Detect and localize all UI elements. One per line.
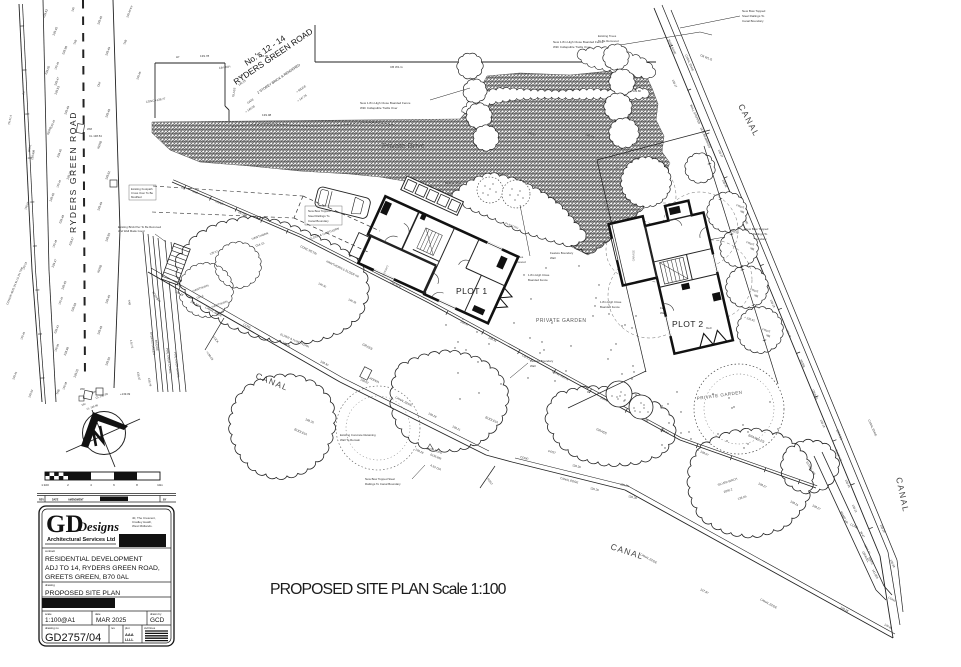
- svg-text:Wall: Wall: [550, 256, 556, 260]
- svg-text:New Bow Topped Steel: New Bow Topped Steel: [365, 477, 395, 481]
- svg-text:10m: 10m: [157, 483, 163, 487]
- svg-text:CB W1.G: CB W1.G: [390, 65, 403, 69]
- svg-text:rev: rev: [111, 626, 115, 630]
- svg-text:PLOT 2: PLOT 2: [672, 319, 704, 329]
- svg-text:date: date: [95, 612, 101, 616]
- svg-text:drawing no: drawing no: [45, 626, 59, 630]
- svg-text:New 1.8m High Close Boarded Fe: New 1.8m High Close Boarded Fence: [553, 40, 604, 44]
- svg-text:Boarded Fence: Boarded Fence: [600, 305, 620, 309]
- svg-text:And Wall Made Good: And Wall Made Good: [118, 229, 145, 233]
- svg-text:GREETS GREEN, B70 0AL: GREETS GREEN, B70 0AL: [45, 574, 129, 581]
- svg-text:LP: LP: [176, 55, 180, 59]
- svg-text:scale: scale: [45, 612, 52, 616]
- svg-text:drawing: drawing: [45, 583, 55, 587]
- svg-text:To Be Removed: To Be Removed: [598, 39, 619, 43]
- svg-text:138.00: 138.00: [259, 54, 269, 58]
- svg-text:Existing Trees: Existing Trees: [598, 34, 617, 38]
- svg-text:With Collapsible Trellis Over: With Collapsible Trellis Over: [360, 106, 398, 110]
- svg-text:Feature Boundary: Feature Boundary: [530, 359, 554, 363]
- svg-text:Modified: Modified: [131, 195, 142, 199]
- svg-text:drawn by: drawn by: [150, 612, 162, 616]
- svg-text:Canal Boundary: Canal Boundary: [742, 19, 764, 23]
- svg-text:Refuse Area: Refuse Area: [445, 181, 462, 185]
- svg-text:Boarded Fence: Boarded Fence: [528, 278, 548, 282]
- svg-text:New Bow Topped: New Bow Topped: [742, 9, 766, 13]
- svg-text:GARAGE: GARAGE: [632, 250, 636, 261]
- svg-text:GD2757/04: GD2757/04: [45, 632, 101, 644]
- svg-text:9w0: 9w0: [706, 326, 712, 330]
- svg-text:AAA: AAA: [125, 632, 134, 637]
- svg-text:139.08: 139.08: [262, 113, 272, 117]
- svg-text:Architectural Services Ltd: Architectural Services Ltd: [47, 537, 115, 543]
- svg-text:BY: BY: [163, 499, 167, 502]
- svg-text:Canal Boundary: Canal Boundary: [308, 219, 329, 223]
- svg-text:+ 139.80: + 139.80: [630, 89, 641, 93]
- svg-text:With Collapsible Trellis Over: With Collapsible Trellis Over: [553, 45, 591, 49]
- svg-text:1.8m High Close: 1.8m High Close: [528, 273, 550, 277]
- svg-text:Steel Railings To: Steel Railings To: [742, 14, 765, 18]
- svg-text:civil lines: civil lines: [144, 626, 156, 630]
- svg-text:1:100: 1:100: [41, 483, 49, 487]
- svg-text:GCD: GCD: [150, 617, 165, 624]
- svg-text:RESIDENTIAL DEVELOPMENT: RESIDENTIAL DEVELOPMENT: [45, 556, 143, 563]
- svg-text:plot: plot: [125, 626, 130, 630]
- svg-text:DATE: DATE: [52, 499, 59, 502]
- svg-text:CL 138.54: CL 138.54: [89, 134, 102, 138]
- svg-text:New 1.8m High Close Boarded Fe: New 1.8m High Close Boarded Fence: [360, 101, 411, 105]
- svg-text:PROPOSED SITE PLAN: PROPOSED SITE PLAN: [45, 590, 120, 597]
- svg-text:Existing Concrete Retaining: Existing Concrete Retaining: [340, 433, 376, 437]
- svg-text:+139.09: +139.09: [120, 392, 131, 396]
- svg-text:PRIVATE GARDEN: PRIVATE GARDEN: [536, 318, 586, 324]
- svg-text:LLLL: LLLL: [125, 638, 134, 642]
- svg-text:New Bow Topped: New Bow Topped: [308, 209, 331, 213]
- svg-text:West Midlands.: West Midlands.: [132, 524, 153, 528]
- svg-text:WM: WM: [87, 127, 93, 131]
- svg-text:Railings To Canal Boundary: Railings To Canal Boundary: [365, 482, 401, 486]
- svg-text:Designs: Designs: [77, 520, 119, 534]
- svg-text:Wall: Wall: [530, 364, 536, 368]
- svg-text:contract: contract: [45, 549, 55, 553]
- svg-text:AMENDMENT: AMENDMENT: [68, 499, 84, 502]
- svg-text:PLOT 1: PLOT 1: [456, 286, 488, 296]
- svg-text:PROPOSED SITE PLAN Scale 1:100: PROPOSED SITE PLAN Scale 1:100: [270, 581, 507, 598]
- svg-text:Steel Railings To: Steel Railings To: [308, 214, 330, 218]
- svg-text:Private Drive: Private Drive: [382, 141, 425, 150]
- svg-text:REV: REV: [39, 499, 44, 502]
- svg-text:New Bow Topped: New Bow Topped: [745, 227, 769, 231]
- svg-text:1.8m High Close: 1.8m High Close: [600, 300, 622, 304]
- svg-text:Feature Boundary: Feature Boundary: [550, 251, 574, 255]
- svg-text:139.78: 139.78: [200, 54, 210, 58]
- svg-text:MAR 2025: MAR 2025: [96, 617, 127, 624]
- svg-text:WR: WR: [80, 387, 85, 391]
- svg-text:1:100@A1: 1:100@A1: [45, 617, 76, 624]
- svg-text:ADJ TO 14, RYDERS GREEN ROAD,: ADJ TO 14, RYDERS GREEN ROAD,: [45, 565, 160, 572]
- svg-text:Wall To Remain: Wall To Remain: [340, 438, 360, 442]
